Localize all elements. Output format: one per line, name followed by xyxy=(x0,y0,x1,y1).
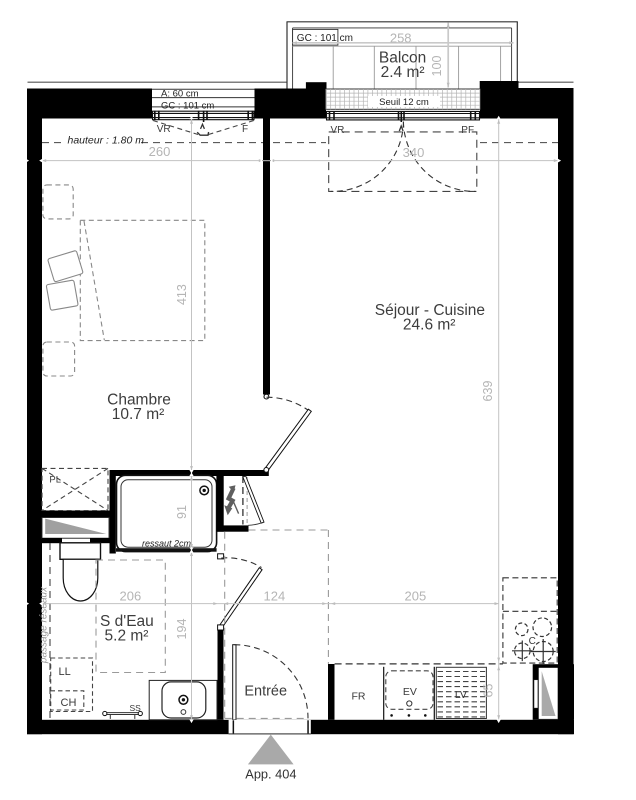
svg-text:2.4 m²: 2.4 m² xyxy=(381,64,425,81)
svg-text:LL: LL xyxy=(58,666,70,678)
svg-text:100: 100 xyxy=(430,56,444,77)
svg-text:C: C xyxy=(529,636,536,647)
svg-text:EV: EV xyxy=(403,686,417,698)
svg-text:258: 258 xyxy=(390,31,412,46)
svg-text:205: 205 xyxy=(405,589,427,604)
svg-text:VR: VR xyxy=(157,124,171,135)
svg-text:PF: PF xyxy=(461,125,474,136)
svg-text:639: 639 xyxy=(481,381,495,402)
svg-text:Seuil 12 cm: Seuil 12 cm xyxy=(379,97,429,108)
svg-text:ressaut 2cm: ressaut 2cm xyxy=(142,539,192,549)
svg-text:PL: PL xyxy=(49,475,61,486)
svg-text:65: 65 xyxy=(482,684,496,698)
svg-text:LV: LV xyxy=(455,689,467,701)
svg-text:VR: VR xyxy=(330,125,344,136)
svg-text:FR: FR xyxy=(352,691,366,703)
svg-text:Entrée: Entrée xyxy=(244,683,287,699)
svg-text:5.2 m²: 5.2 m² xyxy=(105,628,149,645)
svg-text:App. 404: App. 404 xyxy=(245,767,296,782)
svg-text:260: 260 xyxy=(149,144,171,159)
svg-text:340: 340 xyxy=(403,145,425,160)
svg-text:F: F xyxy=(242,124,248,135)
svg-text:91: 91 xyxy=(175,505,189,519)
svg-text:194: 194 xyxy=(175,619,189,640)
svg-text:hauteur : 1.80 m: hauteur : 1.80 m xyxy=(68,134,145,146)
svg-text:206: 206 xyxy=(120,589,142,604)
svg-text:124: 124 xyxy=(264,589,286,604)
svg-text:10.7 m²: 10.7 m² xyxy=(112,406,165,423)
svg-text:413: 413 xyxy=(175,284,189,305)
svg-text:passage réseaux: passage réseaux xyxy=(39,586,50,664)
svg-text:24.6 m²: 24.6 m² xyxy=(403,317,456,334)
svg-text:GC : 101 cm: GC : 101 cm xyxy=(161,101,214,112)
svg-text:A: 60 cm: A: 60 cm xyxy=(161,88,199,99)
svg-text:CH: CH xyxy=(61,697,77,709)
